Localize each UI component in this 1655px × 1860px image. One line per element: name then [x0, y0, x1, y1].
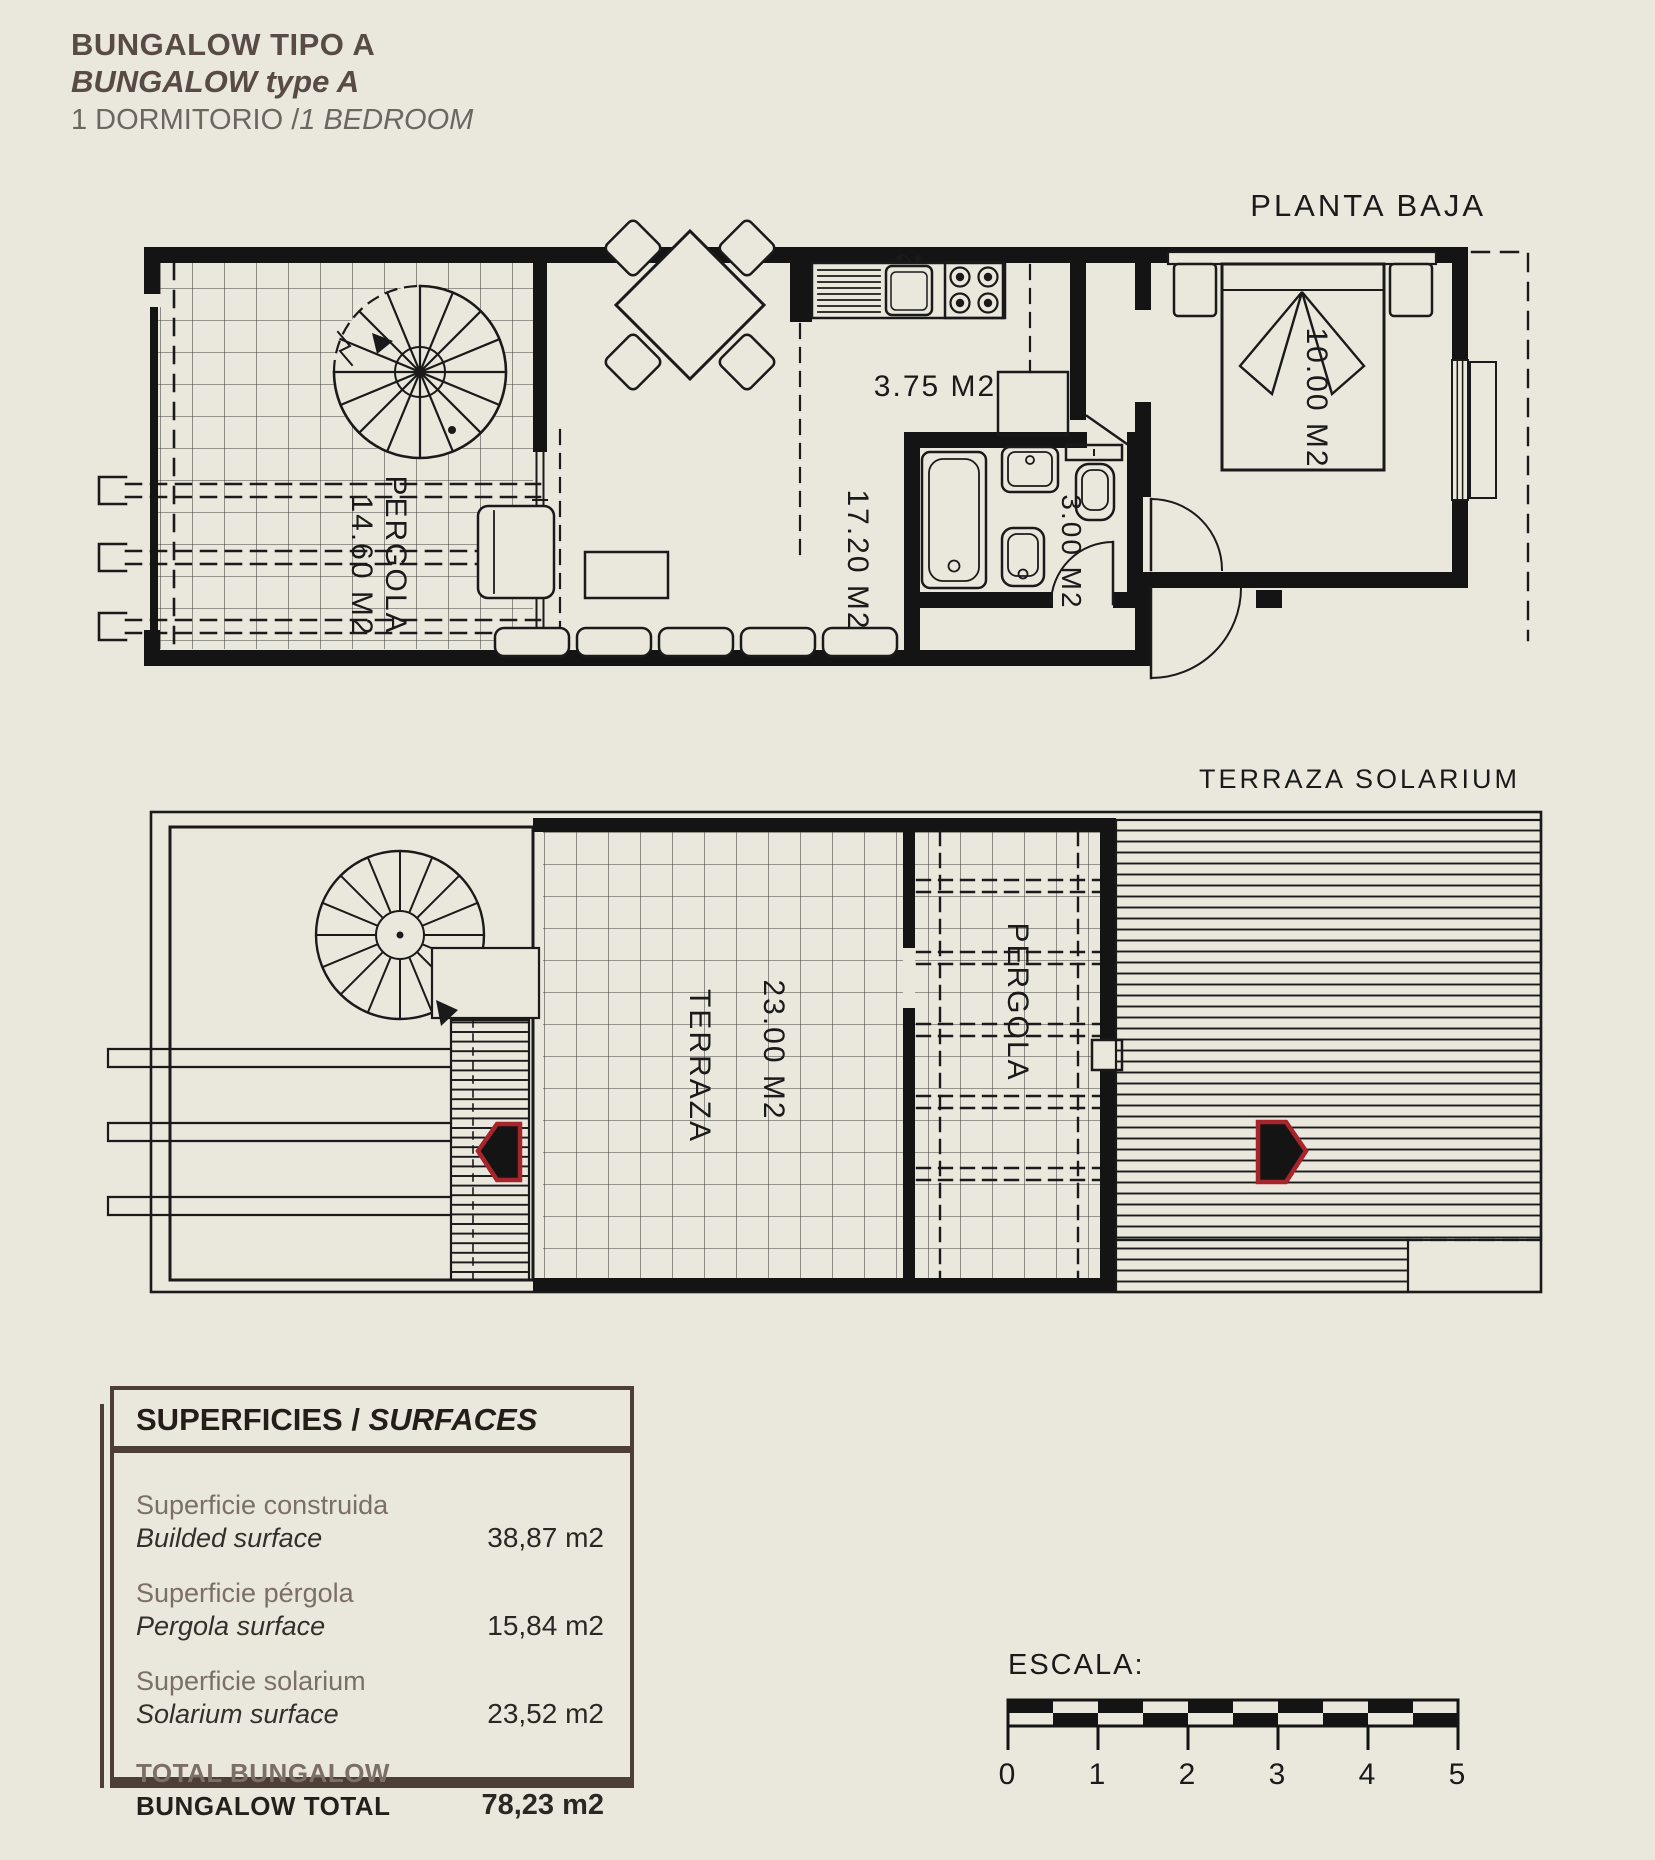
row-value: 23,52 m2: [487, 1698, 604, 1731]
row-value: 38,87 m2: [487, 1522, 604, 1555]
roof-solarium-plan: TERRAZA SOLARIUM: [108, 764, 1541, 1292]
ground-floor-title: PLANTA BAJA: [1250, 188, 1486, 223]
total-label-es: TOTAL BUNGALOW: [136, 1757, 390, 1790]
spiral-staircase: [334, 286, 506, 458]
dining-set: [603, 218, 776, 391]
table-row-built-surface: Superficie construida Builded surface 38…: [136, 1489, 604, 1555]
label-pergola-area: 14.60 M2: [345, 495, 378, 636]
scale-bar: ESCALA:: [999, 1649, 1468, 1791]
surfaces-table-title: SUPERFICIES / SURFACES: [114, 1398, 630, 1453]
bathroom: [922, 445, 1122, 588]
table-row-total: TOTAL BUNGALOW BUNGALOW TOTAL 78,23 m2: [136, 1757, 604, 1823]
label-terraza-area: 23.00 M2: [757, 979, 790, 1120]
sink-drainer-icon: [818, 270, 880, 312]
label-living-area: 17.20 M2: [841, 489, 874, 630]
label-kitchen-area: 3.75 M2: [874, 370, 996, 403]
row-label-es: Superficie solarium: [136, 1665, 366, 1698]
nightstand-left: [1174, 264, 1216, 316]
scale-tick-1: 1: [1089, 1758, 1108, 1791]
row-label-es: Superficie pérgola: [136, 1577, 354, 1610]
label-pergola-name: PERGOLA: [379, 475, 412, 634]
solarium-decking: [1116, 820, 1541, 1292]
total-label-en: BUNGALOW TOTAL: [136, 1790, 390, 1823]
bath-door-leaf: [1087, 416, 1127, 444]
kitchen: [800, 255, 1068, 560]
railings: [108, 1049, 451, 1215]
surfaces-table: SUPERFICIES / SURFACES Superficie constr…: [110, 1386, 634, 1788]
table-row-solarium-surface: Superficie solarium Solarium surface 23,…: [136, 1665, 604, 1731]
row-label-en: Builded surface: [136, 1522, 388, 1555]
scale-label: ESCALA:: [1008, 1649, 1145, 1681]
table-row-pergola-surface: Superficie pérgola Pergola surface 15,84…: [136, 1577, 604, 1643]
label-terraza-name: TERRAZA: [683, 989, 716, 1143]
scale-tick-5: 5: [1449, 1758, 1468, 1791]
row-label-es: Superficie construida: [136, 1489, 388, 1522]
roof-plan-title: TERRAZA SOLARIUM: [1199, 764, 1520, 794]
left-wall-opening: [140, 294, 164, 307]
scale-tick-2: 2: [1179, 1758, 1198, 1791]
nightstand-right: [1390, 264, 1432, 316]
stove-icon: [945, 262, 1003, 318]
stair-strip: [451, 1020, 529, 1280]
scale-tick-3: 3: [1269, 1758, 1288, 1791]
plot-boundary-dashed: [1472, 252, 1528, 640]
fridge: [998, 372, 1068, 435]
roof-spiral-staircase: [316, 851, 539, 1026]
plan-sheet: BUNGALOW TIPO A BUNGALOW type A 1 DORMIT…: [0, 0, 1655, 1860]
row-label-en: Pergola surface: [136, 1610, 354, 1643]
label-bedroom-area: 10.00 M2: [1300, 327, 1333, 468]
washbasin-icon: [1002, 447, 1058, 492]
surfaces-title-es: SUPERFICIES /: [136, 1402, 360, 1437]
row-value: 15,84 m2: [487, 1610, 604, 1643]
label-bath-area: 3.00 M2: [1056, 494, 1087, 609]
coffee-table: [585, 552, 668, 598]
scale-tick-4: 4: [1359, 1758, 1378, 1791]
row-label-en: Solarium surface: [136, 1698, 366, 1731]
total-value: 78,23 m2: [481, 1789, 604, 1823]
ground-floor-plan: PLANTA BAJA: [99, 188, 1528, 678]
surfaces-title-en: SURFACES: [360, 1402, 537, 1437]
headboard: [1168, 252, 1436, 264]
bedroom-window: [1452, 360, 1496, 500]
label-roof-pergola: PERGOLA: [1001, 922, 1034, 1081]
bidet-icon: [1002, 528, 1044, 586]
armchair: [478, 506, 554, 598]
scale-tick-0: 0: [999, 1758, 1018, 1791]
bathtub-icon: [922, 452, 986, 588]
scale-bar-segments: [1008, 1700, 1458, 1726]
terraza-floor: [543, 832, 903, 1278]
sofa: [495, 628, 897, 656]
